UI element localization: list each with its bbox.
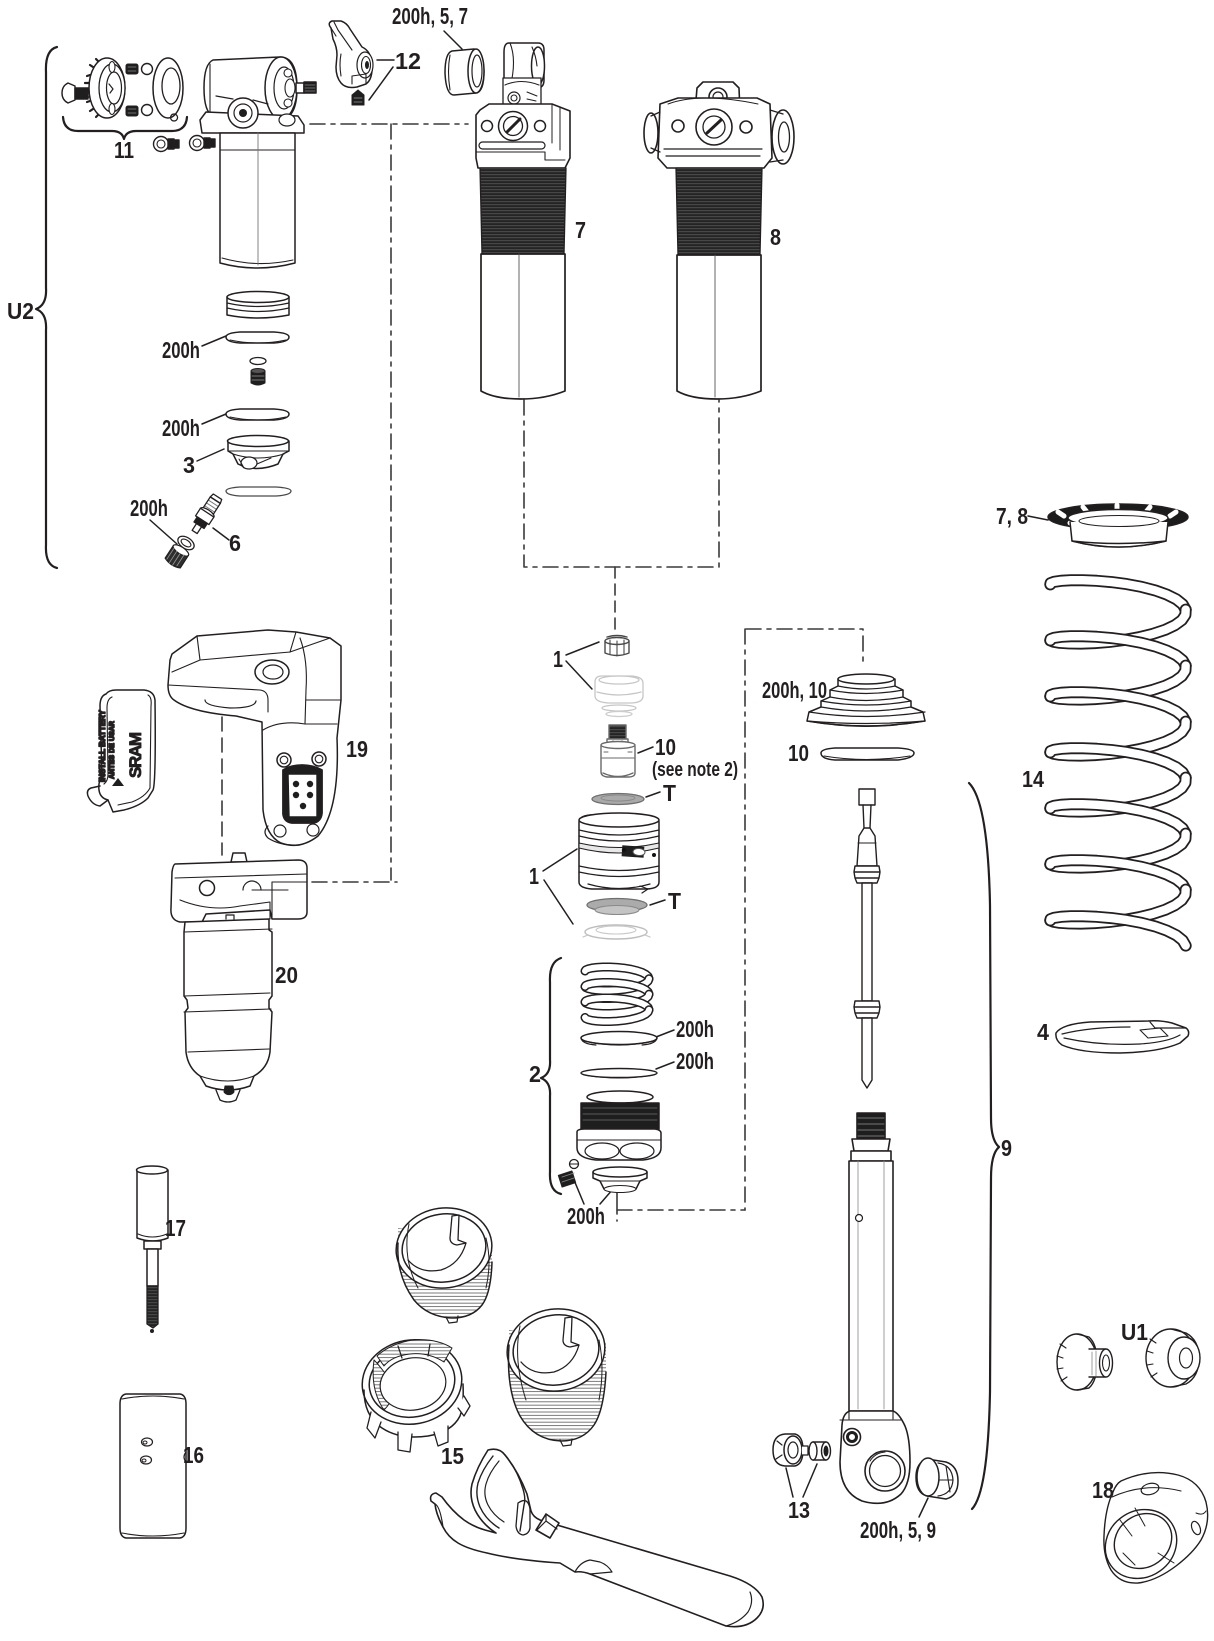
svg-text:INSTALL BATTERY: INSTALL BATTERY: [98, 709, 107, 782]
svg-text:200h: 200h: [130, 495, 168, 521]
svg-text:15: 15: [441, 1443, 464, 1469]
svg-text:6: 6: [229, 530, 241, 556]
svg-text:20: 20: [275, 962, 298, 988]
svg-text:2: 2: [529, 1061, 541, 1087]
svg-text:8: 8: [770, 224, 781, 250]
svg-text:200h: 200h: [567, 1203, 605, 1229]
svg-text:ANTES DE USAR: ANTES DE USAR: [109, 721, 116, 779]
svg-text:11: 11: [114, 137, 134, 163]
svg-text:16: 16: [183, 1442, 204, 1468]
svg-text:SRAM: SRAM: [126, 732, 145, 778]
svg-text:U2: U2: [7, 298, 34, 324]
svg-text:200h: 200h: [162, 337, 200, 363]
svg-text:200h, 5, 9: 200h, 5, 9: [860, 1517, 936, 1543]
svg-text:(see note 2): (see note 2): [652, 759, 738, 781]
svg-text:9: 9: [1001, 1135, 1012, 1161]
svg-text:10: 10: [655, 734, 676, 760]
svg-text:200h: 200h: [676, 1016, 714, 1042]
svg-text:U1: U1: [1121, 1319, 1148, 1345]
svg-text:1: 1: [529, 863, 539, 889]
svg-text:200h, 10: 200h, 10: [762, 677, 827, 703]
svg-text:7: 7: [575, 217, 586, 243]
svg-text:13: 13: [788, 1497, 810, 1523]
svg-text:18: 18: [1092, 1477, 1114, 1503]
svg-text:T: T: [668, 888, 681, 914]
svg-text:200h, 5, 7: 200h, 5, 7: [392, 3, 468, 29]
svg-text:3: 3: [183, 452, 195, 478]
svg-text:200h: 200h: [676, 1048, 714, 1074]
svg-text:T: T: [663, 780, 676, 806]
svg-text:7, 8: 7, 8: [996, 503, 1028, 529]
svg-text:17: 17: [165, 1215, 186, 1241]
svg-text:4: 4: [1037, 1019, 1049, 1045]
svg-text:1: 1: [553, 646, 563, 672]
svg-text:12: 12: [395, 48, 421, 74]
svg-text:19: 19: [346, 736, 368, 762]
svg-text:14: 14: [1022, 766, 1044, 792]
svg-text:10: 10: [788, 740, 809, 766]
svg-text:200h: 200h: [162, 415, 200, 441]
